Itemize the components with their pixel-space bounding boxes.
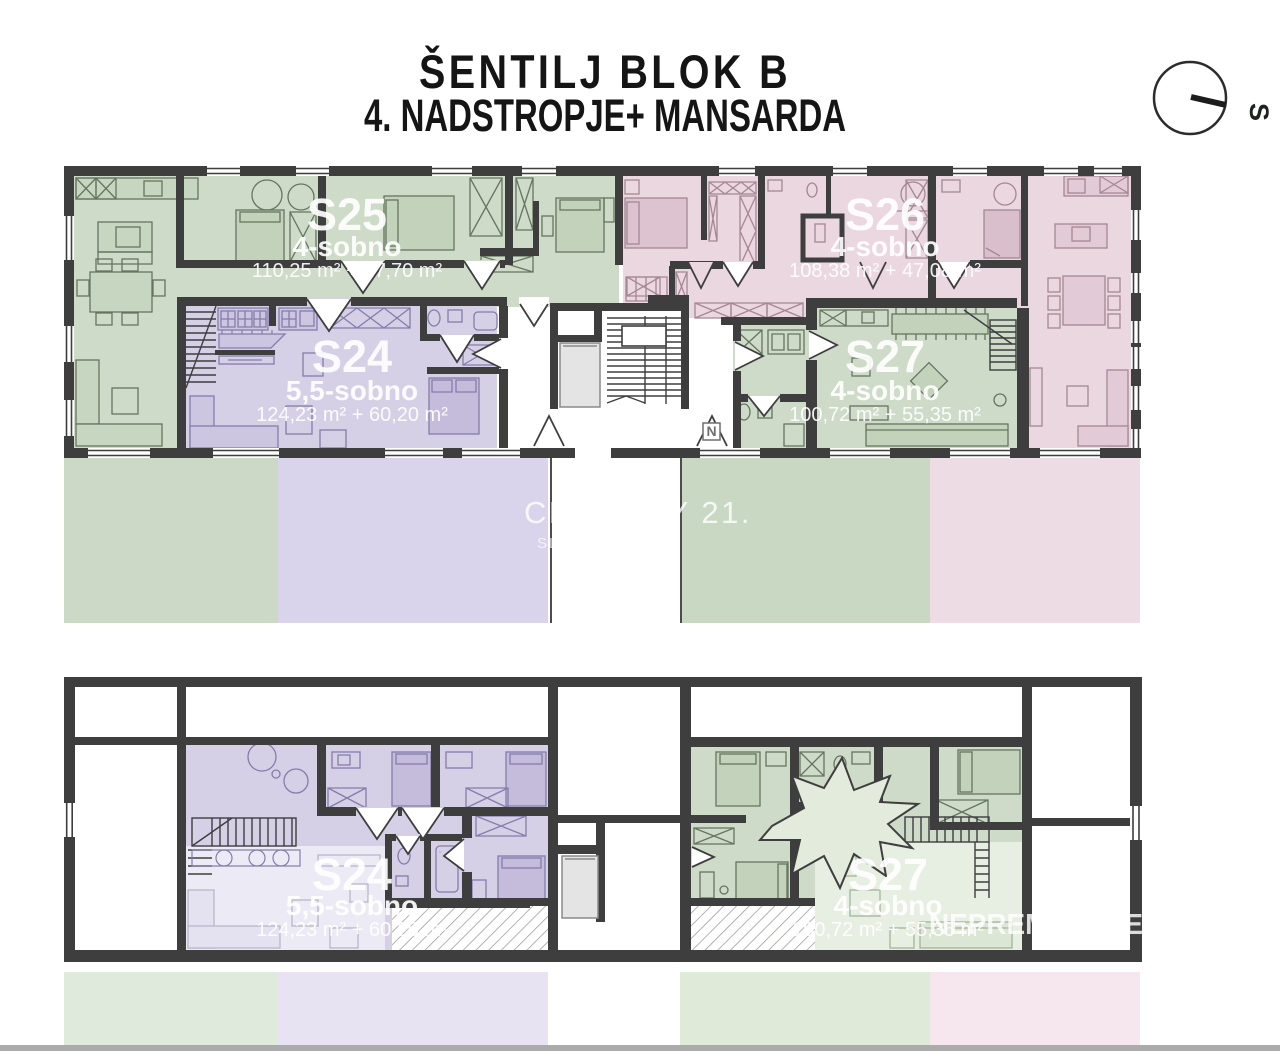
svg-text:SLOVENIJA: SLOVENIJA	[537, 535, 638, 552]
svg-text:CENTURY 21.: CENTURY 21.	[524, 495, 752, 530]
svg-text:NEPREMIČNINE: NEPREMIČNINE	[929, 907, 1143, 941]
svg-text:5,5-sobno: 5,5-sobno	[286, 890, 418, 921]
svg-text:5,5-sobno: 5,5-sobno	[286, 375, 418, 406]
svg-text:100,72 m² + 55,35 m²: 100,72 m² + 55,35 m²	[789, 404, 981, 426]
svg-text:124,23 m² + 60,20 m²: 124,23 m² + 60,20 m²	[256, 404, 448, 426]
svg-text:4-sobno: 4-sobno	[293, 231, 402, 262]
svg-text:4-sobno: 4-sobno	[831, 231, 940, 262]
svg-text:S: S	[1244, 103, 1274, 121]
svg-text:124,23 m² + 60,20 m²: 124,23 m² + 60,20 m²	[256, 919, 448, 941]
svg-text:4-sobno: 4-sobno	[831, 375, 940, 406]
svg-text:110,25 m² + 47,70 m²: 110,25 m² + 47,70 m²	[252, 260, 443, 282]
svg-text:108,38 m² + 47,08 m²: 108,38 m² + 47,08 m²	[789, 260, 981, 282]
svg-text:N: N	[706, 423, 716, 439]
svg-text:4. NADSTROPJE+ MANSARDA: 4. NADSTROPJE+ MANSARDA	[364, 90, 846, 141]
svg-text:4-sobno: 4-sobno	[834, 890, 943, 921]
